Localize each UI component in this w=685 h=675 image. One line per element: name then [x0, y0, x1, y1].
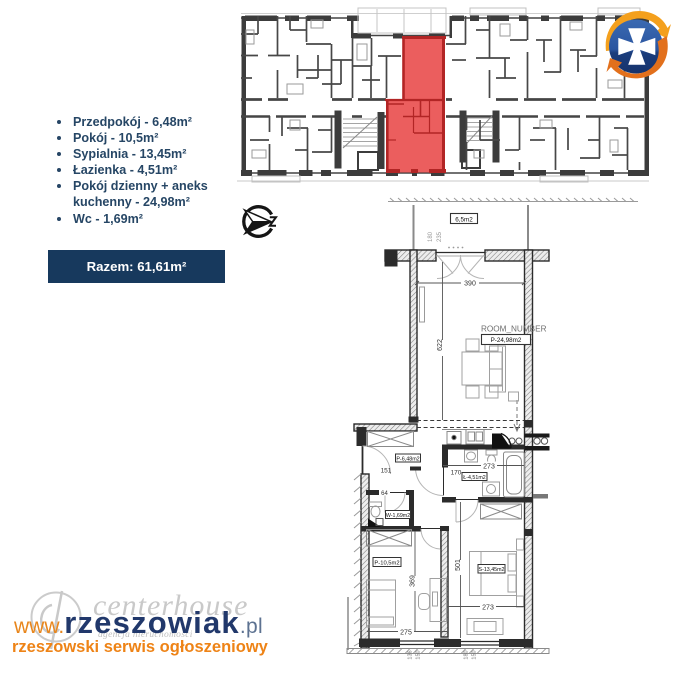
svg-text:P-24,98m2: P-24,98m2 [491, 337, 522, 344]
svg-text:P-10,5m2: P-10,5m2 [374, 560, 399, 566]
svg-text:273: 273 [483, 464, 495, 471]
svg-text:622: 622 [437, 339, 444, 351]
svg-text:273: 273 [482, 605, 494, 612]
svg-text:180: 180 [464, 650, 470, 659]
svg-text:170: 170 [451, 470, 462, 477]
svg-text:6,5m2: 6,5m2 [455, 216, 473, 223]
svg-text:275: 275 [400, 630, 412, 637]
svg-text:150: 150 [472, 650, 478, 659]
svg-text:Ł-4,51m2: Ł-4,51m2 [463, 475, 485, 481]
svg-text:136: 136 [408, 650, 414, 659]
svg-text:150: 150 [416, 650, 422, 659]
svg-text:151: 151 [381, 468, 392, 475]
svg-text:64: 64 [381, 491, 388, 497]
svg-text:369: 369 [410, 575, 417, 587]
svg-text:W-1,69m2: W-1,69m2 [386, 513, 410, 519]
svg-text:180: 180 [428, 231, 434, 242]
svg-text:S-13,45m2: S-13,45m2 [479, 567, 505, 573]
svg-text:ROOM_NUMBER: ROOM_NUMBER [481, 325, 547, 334]
svg-text:235: 235 [437, 231, 443, 242]
svg-text:390: 390 [464, 281, 476, 288]
svg-text:501: 501 [455, 559, 462, 571]
svg-text:P-6,48m2: P-6,48m2 [396, 456, 419, 462]
